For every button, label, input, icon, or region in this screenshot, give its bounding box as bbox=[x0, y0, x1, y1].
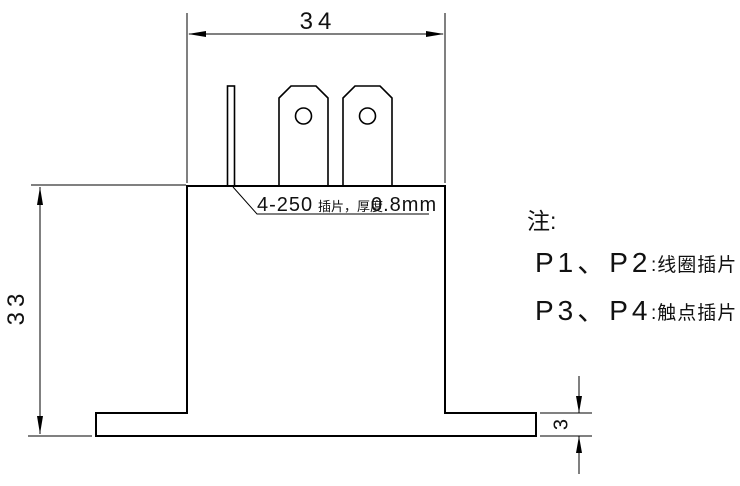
dimension-value-flange: 3 bbox=[550, 419, 572, 430]
notes-block: 注: P1、P2 :线圈插片 P3、P4 :触点插片 bbox=[527, 208, 737, 326]
arrowhead-down bbox=[576, 396, 582, 413]
arrowhead-top bbox=[37, 187, 43, 205]
relay-body-outline bbox=[96, 186, 536, 436]
leader-terminal-spec: 4-250 插片，厚度 0.8mm bbox=[233, 187, 437, 216]
arrowhead-bottom bbox=[37, 416, 43, 434]
dimension-top-width: 34 bbox=[187, 8, 445, 183]
blade-terminal-2 bbox=[343, 86, 392, 186]
relay-outline-drawing: 34 33 3 4-250 插片，厚度 0.8mm bbox=[0, 0, 740, 486]
blade-terminal-1 bbox=[279, 86, 328, 186]
arrowhead-left bbox=[188, 31, 206, 37]
arrowhead-right bbox=[426, 31, 444, 37]
note-line2-desc: :触点插片 bbox=[651, 302, 737, 324]
terminal-tab-edge-view bbox=[228, 86, 235, 186]
note-line1-pins: P1、P2 bbox=[535, 247, 652, 278]
arrowhead-up bbox=[576, 436, 582, 453]
notes-heading: 注: bbox=[527, 208, 556, 234]
blade-terminal-2-hole bbox=[360, 108, 376, 124]
terminal-spec-size: 4-250 bbox=[257, 194, 313, 216]
engineering-drawing-page: 34 33 3 4-250 插片，厚度 0.8mm bbox=[0, 0, 740, 486]
note-line2-pins: P3、P4 bbox=[535, 295, 652, 326]
terminal-spec-thickness: 0.8mm bbox=[371, 194, 437, 216]
dimension-value-width: 34 bbox=[300, 8, 337, 35]
note-line1-desc: :线圈插片 bbox=[651, 254, 737, 276]
dimension-flange-thickness: 3 bbox=[540, 376, 592, 474]
dimension-left-height: 33 bbox=[3, 185, 186, 436]
dimension-value-height: 33 bbox=[3, 289, 30, 326]
blade-terminal-1-hole bbox=[296, 108, 312, 124]
